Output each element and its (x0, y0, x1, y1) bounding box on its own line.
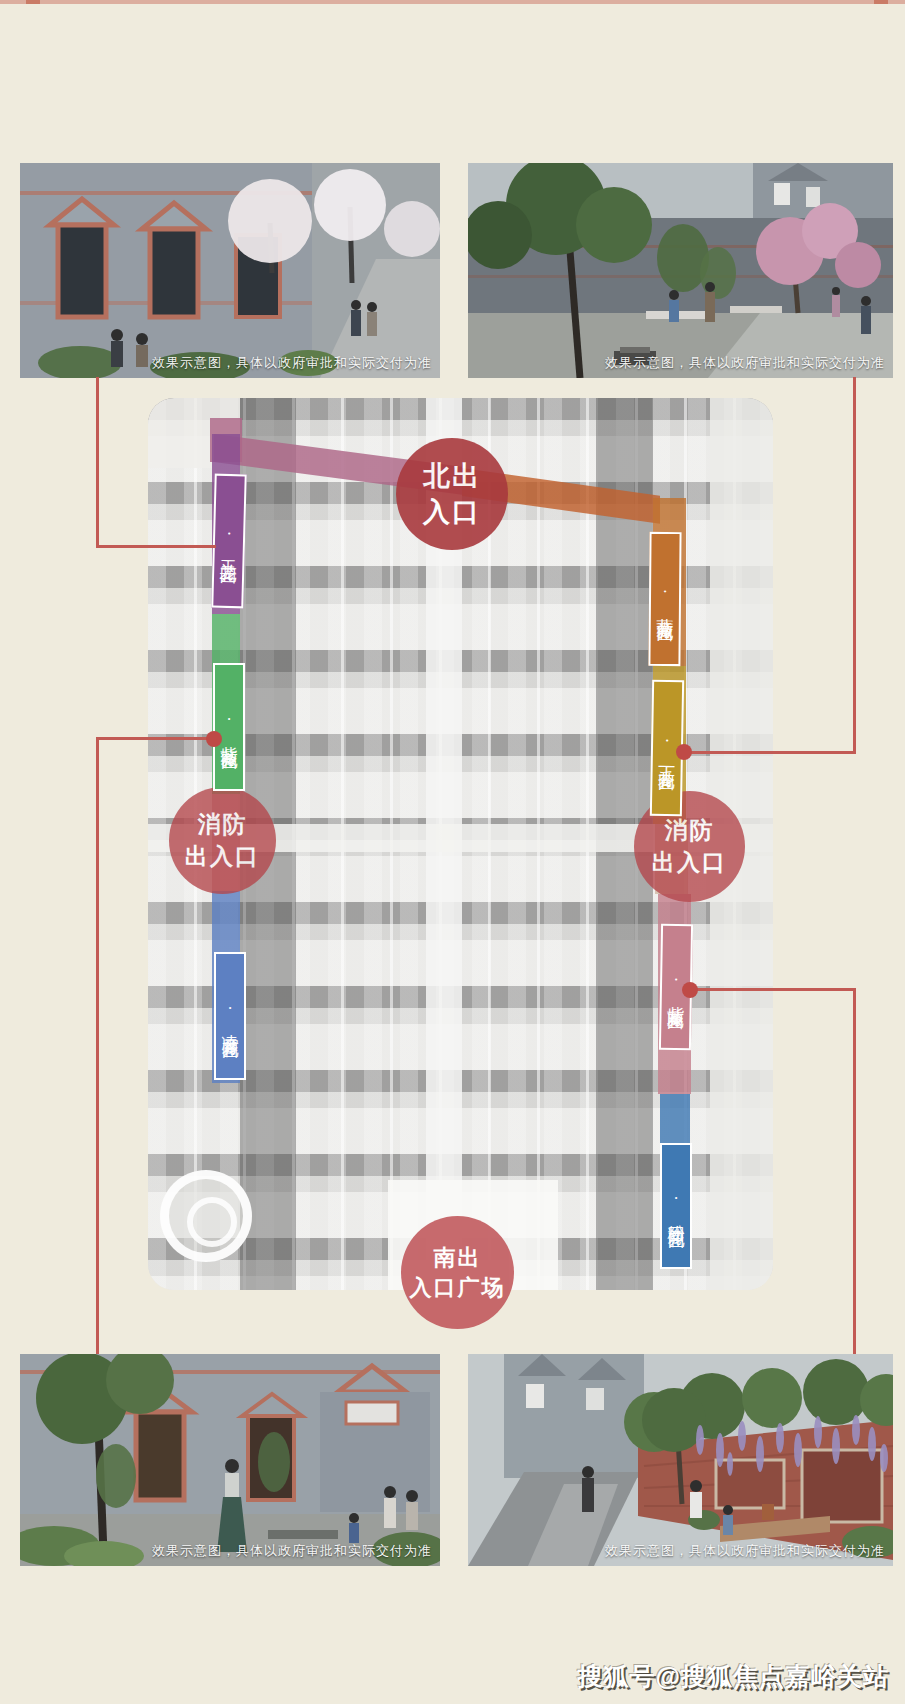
banner-mark-right (874, 0, 888, 4)
banner-mark-left (26, 0, 40, 4)
fire-exit-west-badge: 消防 出入口 (169, 787, 276, 894)
connector-topleft-photo-horizontal (96, 545, 216, 548)
garden-label-ziwei-text: ·紫薇花园 (221, 710, 238, 744)
connector-topright-photo-vertical (853, 377, 856, 753)
connector-bottomright-photo-horizontal (690, 988, 856, 991)
south-entrance-plaza-badge: 南出 入口广场 (401, 1216, 514, 1329)
connector-topleft-photo-vertical (96, 377, 99, 547)
garden-label-qiangwei: ·蔷薇花园 (648, 532, 681, 666)
garden-label-fentuan-text: ·粉团花园 (668, 1189, 685, 1223)
garden-label-lingxiao-text: ·凌霄花园 (222, 999, 239, 1033)
north-entrance-label: 北出 入口 (423, 458, 481, 531)
wisteria-wall-scene (468, 1354, 893, 1566)
garden-label-yulan-text: ·玉兰花园 (220, 524, 238, 558)
connector-topright-photo-horizontal (688, 751, 856, 754)
photo-caption: 效果示意图，具体以政府审批和实际交付为准 (605, 1542, 885, 1560)
promo-page: 效果示意图，具体以政府审批和实际交付为准 (0, 0, 905, 1704)
connector-dot-ziwei (206, 731, 222, 747)
fire-exit-west-label: 消防 出入口 (185, 809, 260, 871)
garden-label-lingxiao: ·凌霄花园 (214, 952, 246, 1080)
connector-dot-dingxiang (676, 744, 692, 760)
courtyard-magnolia-scene (20, 163, 440, 378)
rendering-photo-bottom-right: 效果示意图，具体以政府审批和实际交付为准 (468, 1354, 893, 1566)
garden-label-ziwei: ·紫薇花园 (213, 663, 245, 791)
garden-label-qiangwei-text: ·蔷薇花园 (656, 582, 673, 616)
north-entrance-badge: 北出 入口 (396, 438, 508, 550)
top-banner-strip (0, 0, 905, 4)
connector-bottomleft-photo-vertical (96, 737, 99, 1356)
connector-bottomleft-photo-horizontal (96, 737, 214, 740)
fire-exit-east-label: 消防 出入口 (652, 815, 727, 877)
garden-label-dingxiang-text: ·丁香花园 (658, 731, 676, 765)
connector-bottomright-photo-vertical (853, 988, 856, 1356)
rendering-photo-top-left: 效果示意图，具体以政府审批和实际交付为准 (20, 163, 440, 378)
garden-label-fentuan: ·粉团花园 (660, 1143, 692, 1269)
photo-caption: 效果示意图，具体以政府审批和实际交付为准 (152, 354, 432, 372)
south-entrance-plaza-label: 南出 入口广场 (410, 1243, 506, 1302)
sohu-watermark: 搜狐号@搜狐焦点嘉峪关站 (578, 1660, 889, 1693)
rendering-photo-top-right: 效果示意图，具体以政府审批和实际交付为准 (468, 163, 893, 378)
garden-bench-scene (468, 163, 893, 378)
photo-caption: 效果示意图，具体以政府审批和实际交付为准 (152, 1542, 432, 1560)
connector-dot-ziteng (682, 982, 698, 998)
courtyard-vine-scene (20, 1354, 440, 1566)
plan-roundabout (160, 1170, 252, 1262)
rendering-photo-bottom-left: 效果示意图，具体以政府审批和实际交付为准 (20, 1354, 440, 1566)
garden-label-yulan: ·玉兰花园 (211, 474, 246, 609)
photo-caption: 效果示意图，具体以政府审批和实际交付为准 (605, 354, 885, 372)
